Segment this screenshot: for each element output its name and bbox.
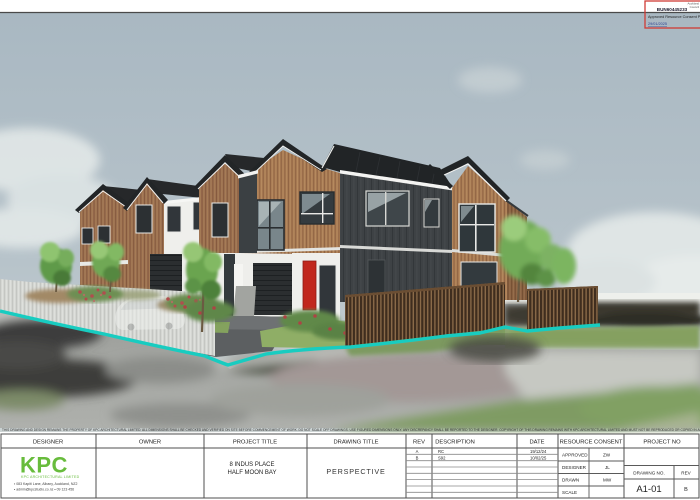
svg-text:ZW: ZW — [603, 453, 611, 458]
svg-text:RESOURCE CONSENT: RESOURCE CONSENT — [560, 440, 623, 446]
svg-text:THIS DRAWING AND DESIGN REMAIN: THIS DRAWING AND DESIGN REMAINS THE PROP… — [2, 428, 700, 432]
svg-text:A1-01: A1-01 — [636, 484, 661, 495]
svg-text:A: A — [416, 449, 419, 454]
svg-text:MW: MW — [603, 478, 612, 483]
svg-text:DESIGNER: DESIGNER — [562, 465, 587, 470]
svg-text:BUN60445233: BUN60445233 — [657, 7, 688, 12]
svg-text:DESCRIPTION: DESCRIPTION — [435, 440, 475, 446]
svg-text:S92: S92 — [438, 456, 446, 461]
svg-text:PROJECT NO: PROJECT NO — [643, 440, 681, 446]
svg-text:APPROVED: APPROVED — [562, 453, 588, 458]
svg-text:DATE: DATE — [529, 440, 544, 446]
svg-text:29/01/2025: 29/01/2025 — [648, 22, 667, 26]
svg-text:HALF MOON BAY: HALF MOON BAY — [228, 470, 277, 476]
svg-text:PERSPECTIVE: PERSPECTIVE — [326, 467, 385, 476]
svg-text:8 INDUS PLACE: 8 INDUS PLACE — [229, 462, 274, 468]
svg-text:B: B — [684, 487, 688, 493]
svg-text:10/02/25: 10/02/25 — [530, 456, 547, 461]
svg-text:SCALE: SCALE — [562, 490, 577, 495]
svg-text:B: B — [416, 456, 419, 461]
svg-text:▪ admin@kpcstudio.co.nz: ▪ admin@kpcstudio.co.nz ▪ 09 123 456 — [14, 488, 74, 492]
svg-text:Council: Council — [690, 5, 700, 9]
svg-text:▪ 083 Kapiti Lane, Albany, Au: ▪ 083 Kapiti Lane, Albany, Auckland, NZ2 — [14, 482, 77, 486]
svg-text:DRAWING NO.: DRAWING NO. — [633, 471, 664, 476]
svg-text:PROJECT TITLE: PROJECT TITLE — [233, 440, 277, 446]
svg-text:REV: REV — [413, 440, 425, 446]
svg-text:19/12/24: 19/12/24 — [530, 449, 547, 454]
svg-text:DESIGNER: DESIGNER — [33, 440, 63, 446]
svg-text:REV: REV — [681, 471, 691, 476]
svg-text:KPC: KPC — [20, 453, 68, 478]
svg-text:JL: JL — [605, 465, 610, 470]
svg-text:DRAWING TITLE: DRAWING TITLE — [333, 440, 378, 446]
svg-text:RC: RC — [438, 449, 444, 454]
svg-text:OWNER: OWNER — [139, 440, 161, 446]
svg-text:Approved Resource Consent Pla: Approved Resource Consent Pla — [648, 15, 700, 19]
svg-text:KPC ARCHITECTURAL LIMITED: KPC ARCHITECTURAL LIMITED — [21, 475, 80, 479]
svg-text:DRAWN: DRAWN — [562, 478, 579, 483]
